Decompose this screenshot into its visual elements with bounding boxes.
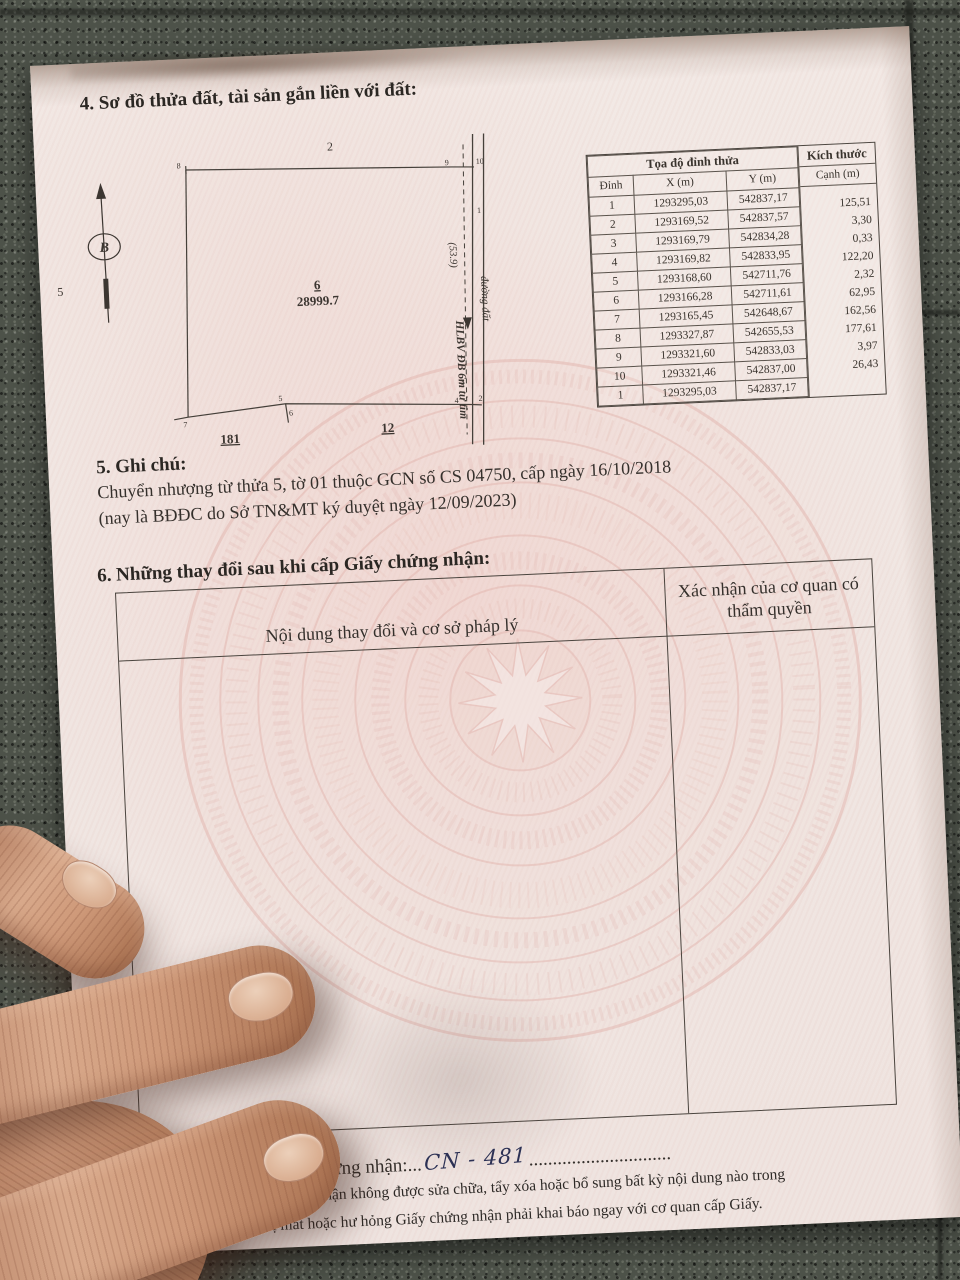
adjacent-parcel-bottom-right: 12	[381, 420, 395, 436]
parcel-diagram: B 2 5 6 28999.7 1	[33, 112, 528, 483]
col-dinh: Đỉnh	[588, 175, 634, 197]
adjacent-parcel-top: 2	[327, 139, 334, 153]
svg-text:9: 9	[445, 158, 449, 167]
hand-shadow	[320, 980, 600, 1180]
dimension-label: (53.9)	[446, 242, 458, 268]
section5-title: 5. Ghi chú:	[96, 453, 187, 479]
svg-text:1: 1	[477, 206, 481, 215]
svg-text:5: 5	[278, 394, 282, 403]
tile-grout-line	[0, 9, 960, 15]
coordinate-table: Tọa độ đỉnh thửa Đỉnh X (m) Y (m) 112932…	[586, 142, 887, 408]
svg-text:8: 8	[176, 161, 180, 170]
vertex-labels: 8 9 10 1 7 5 6 4 3 2	[171, 148, 495, 430]
coordinate-table-right: Kích thước Cạnh (m) 125,51 3,30 0,33 122…	[797, 143, 885, 397]
parcel-area: 28999.7	[296, 292, 339, 309]
photo-scene: 4. Sơ đồ thửa đất, tài sản gắn liền với …	[0, 0, 960, 1280]
parcel-boundary	[163, 153, 486, 428]
edge-values: 125,51 3,30 0,33 122,20 2,32 62,95 162,5…	[800, 184, 885, 397]
road-name-label: đường đất	[478, 276, 492, 323]
svg-text:7: 7	[183, 420, 187, 429]
edge-length: 26,43	[814, 355, 879, 376]
adjacent-parcel-left: 5	[57, 285, 64, 299]
changes-authority-header: Xác nhận của cơ quan có thẩm quyền	[663, 559, 874, 636]
north-label: B	[98, 241, 109, 256]
coordinate-table-left: Tọa độ đỉnh thửa Đỉnh X (m) Y (m) 112932…	[587, 146, 809, 406]
svg-text:6: 6	[289, 408, 293, 417]
parcel-number: 6	[314, 277, 322, 292]
svg-text:2: 2	[478, 394, 482, 403]
column-divider	[663, 569, 689, 1114]
svg-text:10: 10	[476, 157, 484, 166]
adjacent-parcel-bottom-left: 181	[220, 431, 240, 447]
